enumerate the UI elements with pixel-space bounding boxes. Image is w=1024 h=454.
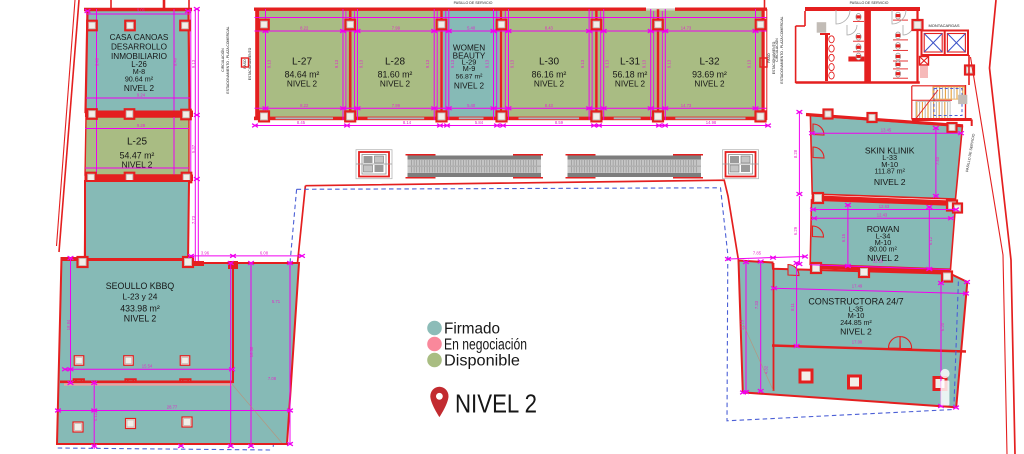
svg-text:6.12: 6.12: [928, 236, 933, 245]
svg-text:9.13: 9.13: [580, 59, 585, 68]
svg-text:7.33: 7.33: [754, 300, 759, 309]
svg-text:5.40: 5.40: [467, 103, 476, 108]
svg-text:7.99: 7.99: [392, 26, 401, 31]
svg-text:56.18 m²: 56.18 m²: [613, 70, 648, 80]
svg-text:9.13: 9.13: [485, 59, 490, 68]
svg-text:7.08: 7.08: [268, 376, 277, 381]
svg-text:7.85: 7.85: [753, 251, 762, 256]
svg-text:NIVEL 2: NIVEL 2: [874, 177, 906, 187]
svg-text:En negociación: En negociación: [444, 337, 527, 354]
svg-text:4.12: 4.12: [93, 412, 98, 421]
svg-text:L-30: L-30: [539, 57, 559, 68]
svg-text:8.22: 8.22: [300, 103, 309, 108]
svg-text:SEOULLO KBBQ: SEOULLO KBBQ: [106, 281, 175, 291]
svg-text:5.84: 5.84: [475, 120, 484, 125]
svg-text:3.96: 3.96: [201, 251, 210, 256]
svg-text:14.73: 14.73: [681, 26, 692, 31]
svg-text:9.40: 9.40: [173, 57, 178, 66]
svg-text:13.45: 13.45: [881, 128, 892, 133]
svg-text:M-9: M-9: [463, 64, 476, 73]
svg-text:NIVEL 2: NIVEL 2: [867, 253, 899, 263]
svg-text:9.13: 9.13: [425, 59, 430, 68]
svg-text:Firmado: Firmado: [444, 321, 500, 338]
svg-text:9.13: 9.13: [359, 59, 364, 68]
svg-text:7.73: 7.73: [191, 215, 196, 224]
svg-text:CIRCULACIÓN: CIRCULACIÓN: [220, 48, 225, 72]
svg-text:9.13: 9.13: [191, 59, 196, 68]
svg-text:8.59: 8.59: [555, 120, 564, 125]
svg-text:ESTACIONAMIENTO: ESTACIONAMIENTO: [772, 41, 776, 74]
svg-text:NIVEL 2: NIVEL 2: [534, 80, 565, 89]
svg-text:NIVEL 2: NIVEL 2: [455, 389, 537, 419]
svg-text:90.64 m²: 90.64 m²: [125, 75, 154, 84]
svg-text:NIVEL 2: NIVEL 2: [122, 160, 153, 170]
svg-text:5.37: 5.37: [191, 144, 196, 153]
svg-text:5.40: 5.40: [467, 26, 476, 31]
svg-text:L-25: L-25: [127, 137, 147, 148]
svg-text:PASILLO DE SERVICIO: PASILLO DE SERVICIO: [454, 1, 493, 5]
svg-text:ESTACIONAMIENTO - PLAZA COMERC: ESTACIONAMIENTO - PLAZA COMERCIAL: [226, 26, 230, 93]
svg-text:6.29: 6.29: [793, 226, 798, 235]
svg-text:NIVEL 2: NIVEL 2: [840, 327, 872, 337]
svg-text:9.40: 9.40: [95, 57, 100, 66]
svg-text:NIVEL 2: NIVEL 2: [287, 80, 318, 89]
svg-text:9.13: 9.13: [605, 59, 610, 68]
svg-text:11.15: 11.15: [740, 319, 745, 330]
svg-text:NIVEL 2: NIVEL 2: [124, 84, 155, 93]
svg-text:433.98 m²: 433.98 m²: [120, 304, 160, 314]
svg-text:NIVEL 2: NIVEL 2: [380, 80, 411, 89]
svg-text:12.43: 12.43: [877, 213, 888, 218]
svg-text:9.13: 9.13: [642, 59, 647, 68]
svg-text:111.87 m²: 111.87 m²: [874, 168, 905, 175]
svg-text:5.71: 5.71: [272, 299, 281, 304]
svg-text:15.54: 15.54: [142, 363, 153, 368]
svg-text:6.08: 6.08: [260, 251, 269, 256]
svg-text:14.98: 14.98: [706, 120, 717, 125]
svg-text:9.13: 9.13: [666, 59, 671, 68]
svg-text:8.28: 8.28: [793, 149, 798, 158]
svg-text:9.24: 9.24: [137, 93, 146, 98]
svg-text:28.77: 28.77: [167, 405, 178, 410]
svg-text:9.13: 9.13: [450, 59, 455, 68]
svg-text:6.15: 6.15: [841, 233, 846, 242]
svg-text:7.40: 7.40: [935, 156, 940, 165]
svg-text:16.38: 16.38: [249, 346, 254, 357]
svg-text:ESTACIONAMIENTO - PLAZA COMERC: ESTACIONAMIENTO - PLAZA COMERCIAL: [780, 16, 784, 83]
svg-text:NIVEL 2: NIVEL 2: [615, 80, 646, 89]
svg-text:81.60 m²: 81.60 m²: [378, 70, 413, 80]
svg-text:12.63: 12.63: [879, 204, 890, 209]
svg-text:8.45: 8.45: [297, 120, 306, 125]
svg-text:NIVEL 2: NIVEL 2: [124, 314, 157, 324]
svg-text:8.14: 8.14: [403, 120, 412, 125]
svg-text:17.49: 17.49: [852, 284, 863, 289]
svg-text:8.43: 8.43: [545, 26, 554, 31]
svg-text:8.22: 8.22: [300, 26, 309, 31]
svg-text:NIVEL 2: NIVEL 2: [694, 80, 725, 89]
svg-text:6.20: 6.20: [940, 322, 945, 331]
svg-text:14.73: 14.73: [681, 103, 692, 108]
svg-text:L-32: L-32: [699, 57, 719, 68]
svg-text:4.32: 4.32: [764, 365, 769, 374]
svg-text:7.99: 7.99: [392, 103, 401, 108]
svg-text:Disponible: Disponible: [444, 353, 520, 370]
svg-text:L-27: L-27: [292, 57, 312, 68]
svg-text:L-31: L-31: [620, 57, 640, 68]
svg-text:L-28: L-28: [385, 57, 405, 68]
svg-text:9.13: 9.13: [267, 59, 272, 68]
svg-text:CASA CANOAS: CASA CANOAS: [110, 33, 169, 42]
svg-text:17.08: 17.08: [852, 340, 863, 345]
svg-text:NIVEL 2: NIVEL 2: [454, 82, 485, 91]
svg-text:9.13: 9.13: [334, 59, 339, 68]
svg-text:86.16 m²: 86.16 m²: [532, 70, 567, 80]
svg-text:56.87 m²: 56.87 m²: [456, 74, 484, 81]
svg-text:PASILLO DE SERVICIO: PASILLO DE SERVICIO: [850, 1, 889, 5]
svg-text:18.84: 18.84: [66, 319, 71, 330]
svg-text:9.28: 9.28: [137, 123, 146, 128]
svg-text:9.13: 9.13: [747, 59, 752, 68]
svg-text:DESARROLLO: DESARROLLO: [111, 43, 167, 52]
svg-text:9.13: 9.13: [510, 59, 515, 68]
svg-text:L-23 y 24: L-23 y 24: [123, 292, 158, 302]
svg-text:84.64 m²: 84.64 m²: [285, 70, 320, 80]
svg-text:93.69 m²: 93.69 m²: [692, 70, 727, 80]
svg-text:8.43: 8.43: [545, 103, 554, 108]
svg-text:MONTACARGAS: MONTACARGAS: [928, 23, 959, 28]
svg-text:8.11: 8.11: [790, 302, 795, 311]
svg-text:9.01: 9.01: [137, 8, 146, 13]
